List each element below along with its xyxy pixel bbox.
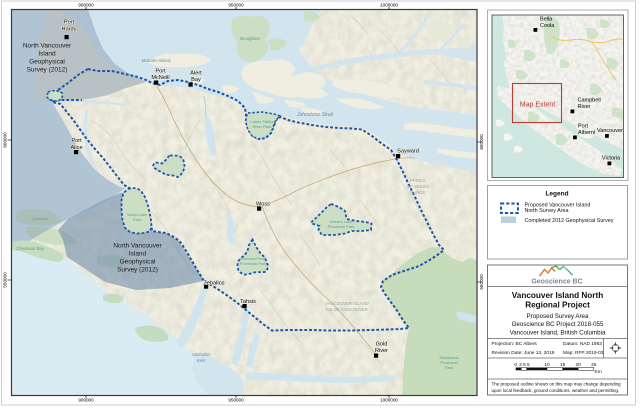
- svg-text:VANCOUVER ISLAND: VANCOUVER ISLAND: [325, 301, 369, 306]
- svg-text:Provincial Park: Provincial Park: [328, 224, 355, 229]
- svg-text:Port: Port: [71, 138, 82, 144]
- svg-text:Bella: Bella: [540, 17, 553, 23]
- svg-text:Woss: Woss: [256, 202, 270, 208]
- svg-text:Park: Park: [445, 365, 453, 370]
- svg-text:900000: 900000: [78, 397, 94, 402]
- svg-text:Hardy: Hardy: [62, 26, 77, 32]
- svg-text:River: River: [375, 348, 388, 354]
- svg-text:Geophysical: Geophysical: [120, 259, 156, 266]
- svg-text:1000000: 1000000: [380, 397, 398, 402]
- svg-text:Victoria: Victoria: [602, 156, 621, 162]
- svg-text:Alert: Alert: [190, 71, 202, 77]
- svg-text:North Survey Area: North Survey Area: [525, 208, 569, 214]
- svg-text:Park: Park: [133, 217, 141, 222]
- svg-text:550000: 550000: [3, 272, 8, 288]
- svg-text:ILE DE VANCOUVER: ILE DE VANCOUVER: [326, 307, 368, 312]
- svg-text:Tahsis: Tahsis: [240, 299, 256, 305]
- svg-text:Legend: Legend: [545, 191, 568, 198]
- svg-text:Nuchatlitz: Nuchatlitz: [192, 352, 212, 357]
- svg-text:OF WALES: OF WALES: [407, 184, 429, 189]
- svg-text:Port: Port: [155, 69, 166, 75]
- svg-text:Campbell: Campbell: [578, 98, 601, 104]
- svg-text:950000: 950000: [228, 2, 244, 7]
- svg-text:25: 25: [591, 362, 597, 368]
- svg-text:Revision Date: June 13, 2019: Revision Date: June 13, 2019: [492, 350, 555, 356]
- svg-text:River Park: River Park: [253, 124, 272, 129]
- svg-text:Coola: Coola: [540, 23, 555, 29]
- svg-text:950000: 950000: [228, 397, 244, 402]
- svg-text:Completed 2012 Geophysical Sur: Completed 2012 Geophysical Survey: [525, 218, 614, 224]
- svg-text:Johnstone Strait: Johnstone Strait: [296, 112, 334, 118]
- svg-text:Map Extent: Map Extent: [520, 102, 555, 109]
- svg-text:Port: Port: [64, 20, 75, 26]
- svg-text:Gold: Gold: [376, 341, 388, 347]
- svg-text:RANGE: RANGE: [410, 190, 425, 195]
- svg-text:Provincial Park: Provincial Park: [240, 261, 267, 266]
- svg-text:Km: Km: [595, 369, 602, 375]
- svg-text:upon local feedback, ground co: upon local feedback, ground conditions, …: [492, 388, 620, 393]
- svg-text:Geoscience BC Project 2018-055: Geoscience BC Project 2018-055: [512, 321, 604, 328]
- svg-text:Island: Island: [38, 51, 56, 58]
- svg-text:North Vancouver: North Vancouver: [23, 43, 72, 50]
- svg-text:Bay: Bay: [191, 77, 201, 83]
- svg-text:Broughton: Broughton: [240, 36, 260, 41]
- svg-text:15: 15: [560, 362, 566, 368]
- svg-text:Quatsino: Quatsino: [32, 216, 49, 221]
- svg-text:Sayward: Sayward: [397, 149, 419, 155]
- svg-text:550000: 550000: [479, 274, 484, 290]
- svg-text:0: 0: [514, 362, 517, 368]
- svg-text:1000000: 1000000: [380, 2, 398, 7]
- svg-text:Inlet: Inlet: [197, 358, 206, 363]
- svg-text:Malcolm Island: Malcolm Island: [142, 58, 171, 63]
- svg-text:Zeballos: Zeballos: [203, 281, 224, 287]
- svg-text:5: 5: [527, 362, 530, 368]
- svg-text:600000: 600000: [479, 134, 484, 150]
- svg-text:Port: Port: [578, 124, 589, 130]
- svg-text:2.5: 2.5: [519, 362, 526, 368]
- svg-text:Alberni: Alberni: [578, 130, 595, 136]
- svg-text:River: River: [578, 104, 591, 110]
- svg-text:McNeill: McNeill: [151, 75, 169, 81]
- svg-text:Survey (2012): Survey (2012): [117, 267, 158, 274]
- svg-text:Survey (2012): Survey (2012): [27, 67, 68, 74]
- svg-text:600000: 600000: [3, 132, 8, 148]
- svg-text:Projection: BC Albers: Projection: BC Albers: [492, 341, 538, 347]
- svg-text:Geophysical: Geophysical: [29, 59, 65, 66]
- svg-text:Vancouver Island, British Colu: Vancouver Island, British Columbia: [510, 330, 606, 337]
- svg-text:Vancouver Island North: Vancouver Island North: [512, 291, 603, 300]
- svg-text:North Vancouver: North Vancouver: [113, 243, 162, 250]
- svg-text:PRINCE: PRINCE: [410, 178, 426, 183]
- svg-text:Datum: NAD 1983: Datum: NAD 1983: [563, 341, 602, 347]
- svg-text:Map: RFP 2019-03: Map: RFP 2019-03: [563, 350, 604, 356]
- svg-text:Proposed Survey Area: Proposed Survey Area: [527, 313, 589, 320]
- svg-text:The proposed outline shown on: The proposed outline shown on this map m…: [492, 381, 622, 386]
- svg-text:Alice: Alice: [70, 145, 82, 151]
- svg-text:Regional Project: Regional Project: [525, 301, 590, 310]
- svg-text:Checleset Bay: Checleset Bay: [16, 246, 45, 251]
- svg-text:Geoscience BC: Geoscience BC: [531, 278, 582, 285]
- svg-text:Vancouver: Vancouver: [597, 128, 623, 134]
- svg-text:900000: 900000: [78, 2, 94, 7]
- svg-text:20: 20: [576, 362, 582, 368]
- svg-text:10: 10: [544, 362, 550, 368]
- svg-text:Island: Island: [129, 251, 147, 258]
